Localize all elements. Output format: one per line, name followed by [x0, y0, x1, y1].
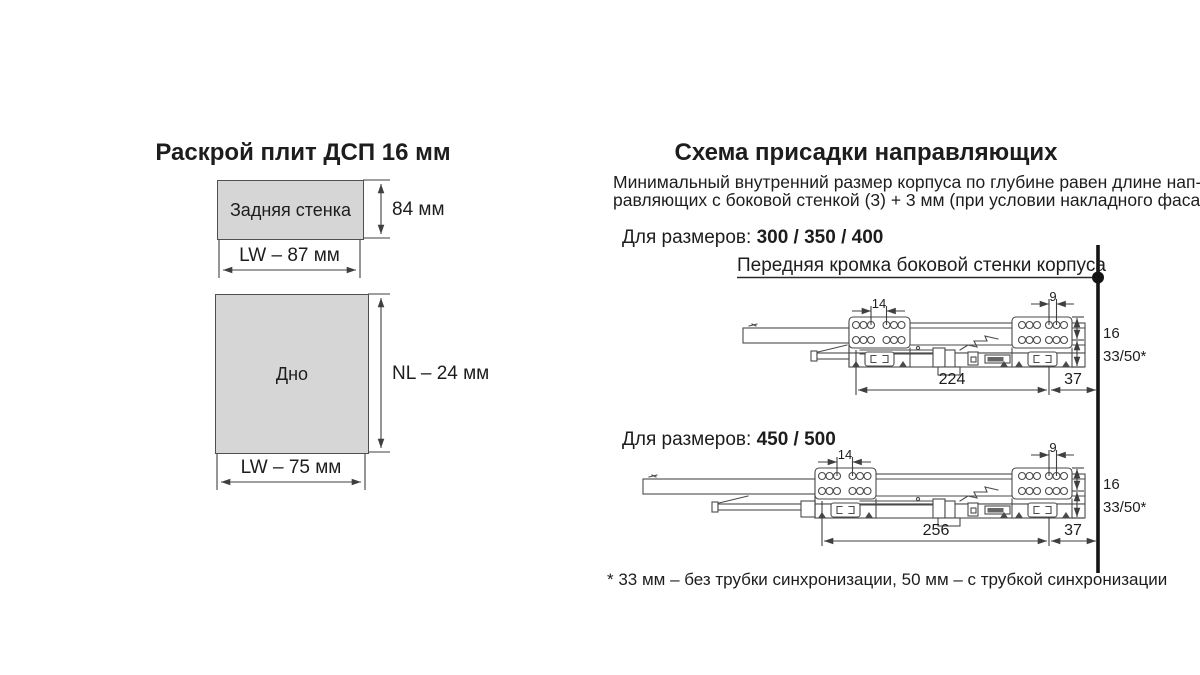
mounting-hole [1034, 337, 1041, 344]
mounting-hole [1046, 337, 1053, 344]
right-title: Схема присадки направляющих [616, 139, 1116, 167]
mounting-hole [1019, 473, 1026, 480]
dim-rear-hole-spacing-2: 9 [1049, 440, 1056, 455]
mounting-hole [891, 322, 898, 329]
latch-part [945, 501, 955, 518]
mounting-hole [819, 488, 826, 495]
rail [643, 479, 815, 494]
dim-row-spacing-2: 16 [1103, 476, 1120, 493]
bottom-panel-label: Дно [276, 364, 308, 385]
mounting-hole [826, 473, 833, 480]
dim-length-2: 256 [923, 522, 950, 539]
mounting-hole [826, 488, 833, 495]
mounting-hole [1034, 488, 1041, 495]
mounting-hole [834, 488, 841, 495]
dim-length-1: 224 [939, 371, 966, 388]
back-wall-label: Задняя стенка [230, 200, 351, 221]
clip [865, 352, 894, 366]
bottom-panel: Дно [215, 294, 369, 454]
mounting-hole [898, 337, 905, 344]
back-wall-height-dim: 84 мм [392, 199, 445, 221]
lever [719, 496, 748, 503]
mounting-hole [1061, 488, 1068, 495]
mounting-hole [860, 322, 867, 329]
brand-label-fill [988, 357, 1004, 362]
mounting-hole [1019, 337, 1026, 344]
mounting-hole [1026, 322, 1033, 329]
mounting-hole [1019, 322, 1026, 329]
mounting-hole [1026, 473, 1033, 480]
mounting-hole [864, 473, 871, 480]
mounting-hole [857, 488, 864, 495]
mounting-hole [1061, 473, 1068, 480]
mounting-hole [857, 473, 864, 480]
bottom-panel-width-dim: LW – 75 мм [215, 457, 367, 479]
sizes-label-2: Для размеров: [622, 429, 751, 450]
sizes-label-1: Для размеров: [622, 227, 751, 248]
rail [743, 328, 849, 343]
rod-cap [712, 502, 718, 512]
dim-front-offset-1: 37 [1064, 371, 1082, 388]
mounting-hole [1053, 488, 1060, 495]
sizes-line-2: Для размеров: 450 / 500 [622, 429, 836, 451]
mounting-hole [849, 488, 856, 495]
slide-drawing-450-500 [643, 450, 1096, 546]
bottom-panel-height-dim: NL – 24 мм [392, 363, 489, 385]
dim-bottom-offset-2: 33/50* [1103, 499, 1147, 516]
mounting-hole [1053, 337, 1060, 344]
rail-end-mark [649, 475, 657, 477]
dim-front-offset-2: 37 [1064, 522, 1082, 539]
clip [831, 503, 860, 517]
back-wall-width-dim: LW – 87 мм [217, 245, 362, 267]
brand-label-fill [988, 508, 1004, 513]
mounting-hole [853, 337, 860, 344]
mounting-hole [898, 322, 905, 329]
footnote: * 33 мм – без трубки синхронизации, 50 м… [607, 570, 1167, 590]
rail-end-mark [749, 324, 757, 326]
page: 14 9 16 33/50* 224 37 14 9 16 33/50* 256… [0, 0, 1200, 675]
dim-front-hole-spacing-1: 14 [872, 296, 886, 311]
mounting-hole [860, 337, 867, 344]
mounting-hole [1019, 488, 1026, 495]
sizes-values-1: 300 / 350 / 400 [757, 227, 884, 248]
mounting-hole [853, 322, 860, 329]
clip [1028, 503, 1057, 517]
sizes-line-1: Для размеров: 300 / 350 / 400 [622, 227, 883, 249]
latch-part [945, 350, 955, 367]
rod-block [801, 501, 815, 517]
mounting-hole [891, 337, 898, 344]
mounting-hole [1026, 337, 1033, 344]
clip [1028, 352, 1057, 366]
mounting-hole [883, 337, 890, 344]
back-wall-panel: Задняя стенка [217, 180, 364, 240]
slide-drawing-300-400 [743, 299, 1096, 395]
dim-rear-hole-spacing-1: 9 [1049, 289, 1056, 304]
description-line-2: равляющих с боковой стенкой (3) + 3 мм (… [613, 190, 1200, 211]
sync-rod [817, 353, 849, 359]
dim-bottom-offset-1: 33/50* [1103, 348, 1147, 365]
mounting-hole [864, 488, 871, 495]
mounting-hole [819, 473, 826, 480]
latch-part [933, 348, 945, 367]
mounting-hole [1026, 488, 1033, 495]
dim-row-spacing-1: 16 [1103, 325, 1120, 342]
dim-front-hole-spacing-2: 14 [838, 447, 852, 462]
mounting-hole [1034, 322, 1041, 329]
sizes-values-2: 450 / 500 [757, 429, 836, 450]
mounting-hole [1046, 488, 1053, 495]
mounting-hole [1061, 337, 1068, 344]
latch-part [933, 499, 945, 518]
lever [818, 345, 847, 352]
mounting-hole [1034, 473, 1041, 480]
mounting-hole [868, 337, 875, 344]
mounting-hole [1061, 322, 1068, 329]
front-edge-label: Передняя кромка боковой стенки корпуса [737, 255, 1091, 277]
left-title: Раскрой плит ДСП 16 мм [143, 139, 463, 167]
rod-cap [811, 351, 817, 361]
